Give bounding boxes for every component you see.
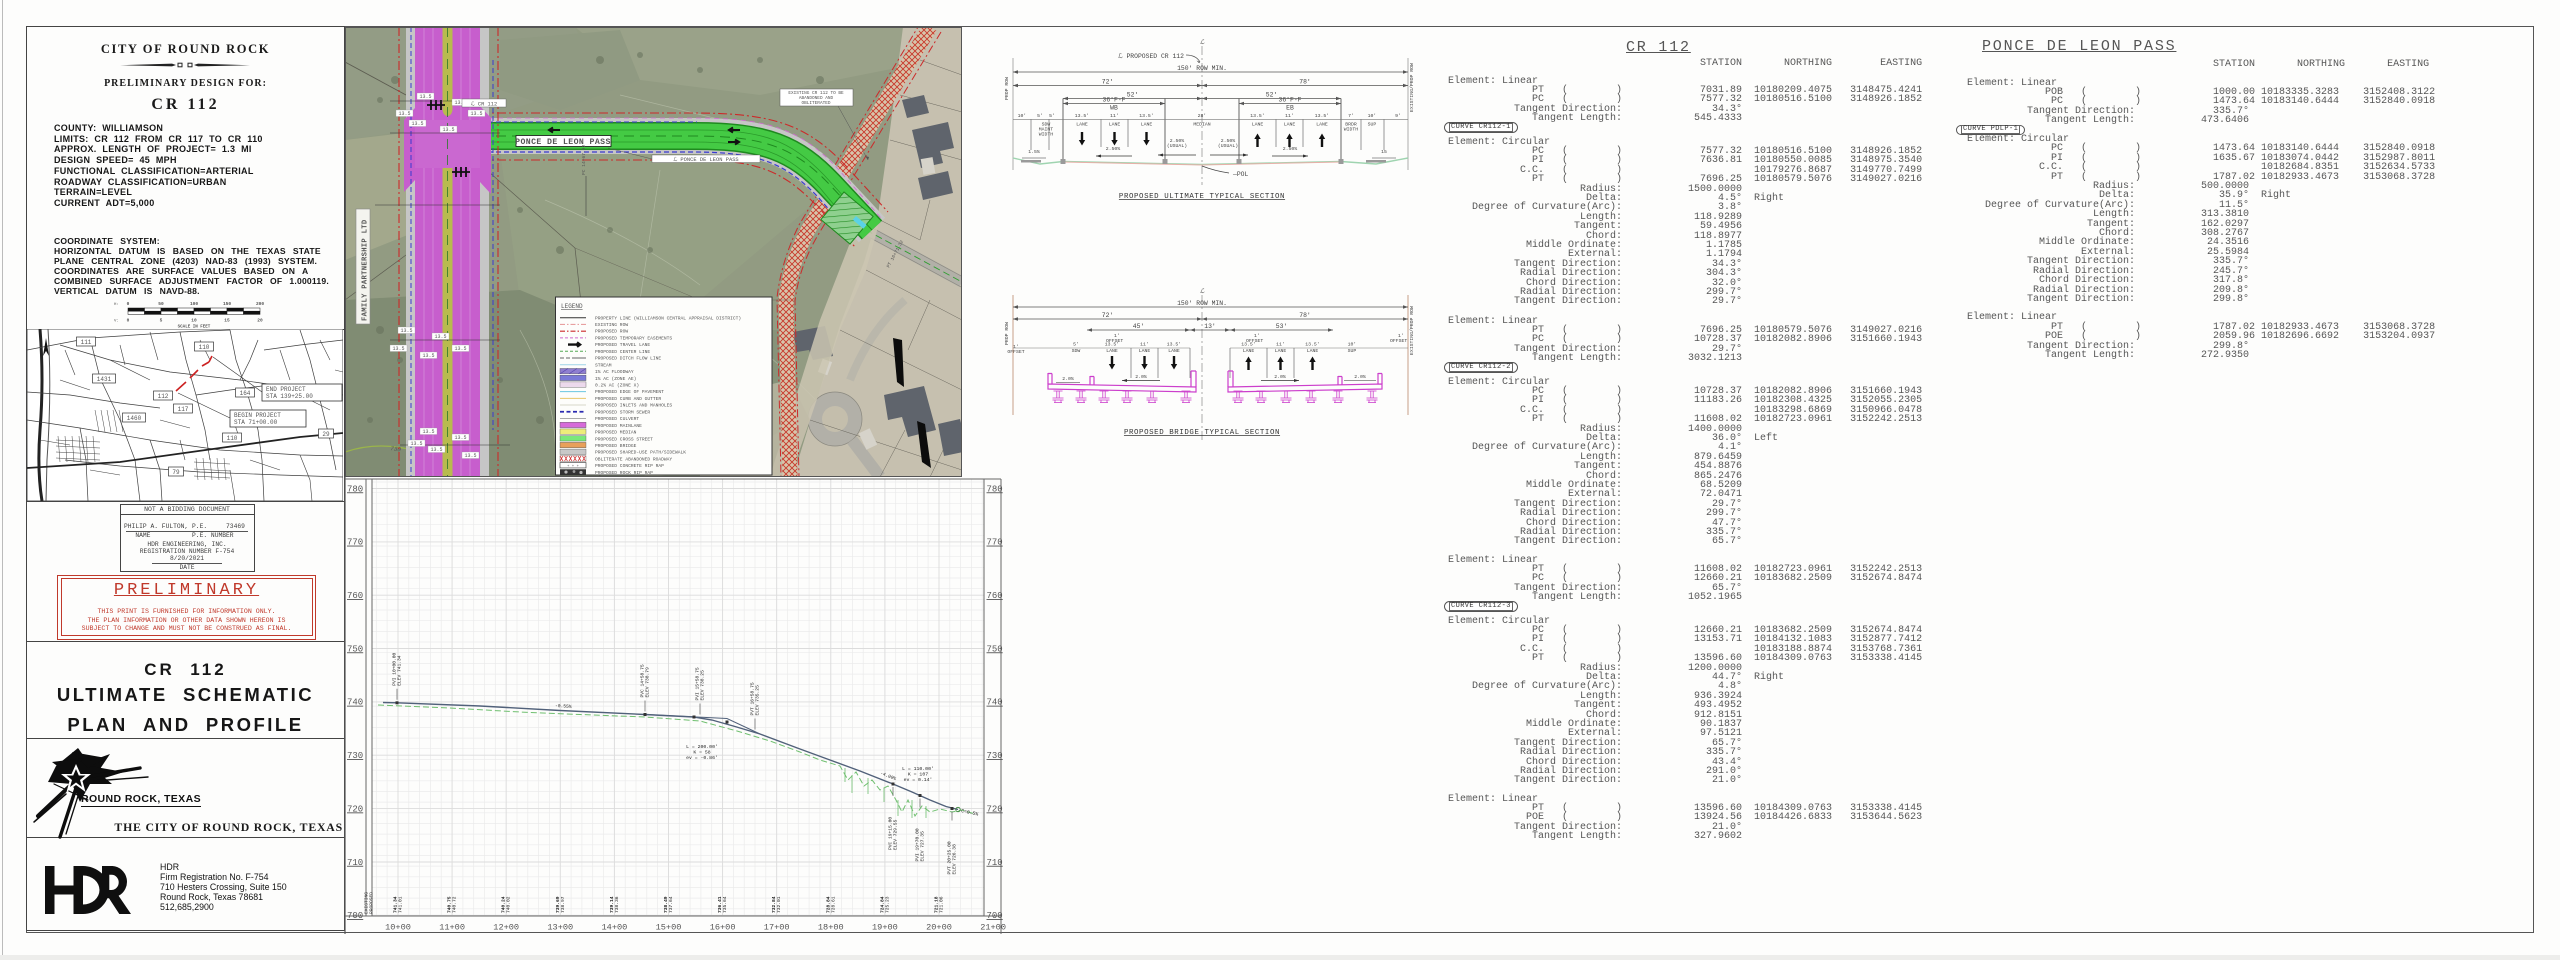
svg-text:72': 72': [1102, 79, 1114, 86]
svg-text:LANE: LANE: [1106, 348, 1118, 354]
svg-text:10': 10': [1368, 113, 1377, 119]
svg-text:10': 10': [1348, 342, 1357, 348]
svg-text:5: 5: [160, 318, 163, 324]
svg-text:50: 50: [158, 301, 164, 307]
svg-text:760: 760: [987, 591, 1003, 601]
svg-text:SDW: SDW: [1072, 348, 1081, 354]
svg-text:9': 9': [1395, 113, 1401, 119]
svg-text:117: 117: [178, 406, 189, 413]
svg-text:13.5: 13.5: [411, 121, 423, 127]
svg-text:V:: V:: [114, 320, 119, 324]
svg-text:730: 730: [347, 751, 363, 761]
svg-text:53': 53': [1276, 323, 1288, 330]
svg-text:PROPERTY LINE (WILLIAMSON CENT: PROPERTY LINE (WILLIAMSON CENTRAL APPRAI…: [595, 315, 741, 321]
svg-text:LANE: LANE: [1243, 348, 1255, 354]
svg-text:13.5': 13.5': [1305, 342, 1319, 348]
svg-text:750: 750: [987, 644, 1003, 654]
svg-text:OFFSET: OFFSET: [1007, 349, 1024, 355]
svg-text:1% AC FLOODWAY: 1% AC FLOODWAY: [595, 369, 634, 375]
svg-text:5': 5': [1037, 113, 1043, 119]
svg-text:36'F-F: 36'F-F: [1278, 97, 1301, 104]
svg-text:17+00: 17+00: [764, 923, 790, 933]
svg-text:760: 760: [347, 591, 363, 601]
svg-text:0: 0: [127, 301, 130, 307]
svg-text:ELEV 741.34: ELEV 741.34: [397, 655, 403, 686]
svg-text:5': 5': [1073, 342, 1079, 348]
svg-text:13+00: 13+00: [547, 923, 573, 933]
svg-text:732.01: 732.01: [776, 896, 782, 913]
svg-text:7': 7': [1348, 113, 1354, 119]
svg-text:L = 110.00': L = 110.00': [902, 766, 934, 772]
svg-text:SUP: SUP: [1348, 348, 1357, 354]
svg-text:ELEV 738.25: ELEV 738.25: [700, 670, 706, 701]
svg-text:79: 79: [172, 469, 180, 476]
svg-text:16+00: 16+00: [710, 923, 736, 933]
svg-text:10': 10': [1018, 113, 1027, 119]
svg-text:150' ROW MIN.: 150' ROW MIN.: [1177, 65, 1227, 72]
svg-text:ℒ: ℒ: [1200, 39, 1205, 46]
svg-text:2.0%: 2.0%: [1274, 374, 1286, 380]
svg-text:PROPOSED BRIDGE: PROPOSED BRIDGE: [595, 443, 637, 449]
svg-text:738.36: 738.36: [614, 896, 620, 913]
svg-text:PONCE DE LEON PASS: PONCE DE LEON PASS: [515, 138, 611, 147]
svg-text:11': 11': [1110, 113, 1119, 119]
svg-text:PROPOSED SHARED-USE PATH/SIDEW: PROPOSED SHARED-USE PATH/SIDEWALK: [595, 450, 686, 456]
svg-text:700: 700: [987, 911, 1003, 921]
svg-text:ELEV 726.38: ELEV 726.38: [952, 844, 958, 875]
svg-text:13.5: 13.5: [442, 127, 454, 133]
svg-text:ℒ PONCE DE LEON PASS: ℒ PONCE DE LEON PASS: [673, 157, 738, 163]
svg-text:110: 110: [227, 435, 238, 442]
svg-text:13.5: 13.5: [470, 111, 482, 117]
svg-text:740: 740: [987, 698, 1003, 708]
svg-text:MEDIAN: MEDIAN: [1193, 122, 1210, 128]
svg-text:LANE: LANE: [1307, 348, 1319, 354]
svg-text:78': 78': [1299, 312, 1311, 319]
svg-text:2.50%: 2.50%: [1106, 146, 1121, 152]
svg-text:112: 112: [158, 393, 169, 400]
svg-text:LANE: LANE: [1168, 348, 1180, 354]
svg-text:ℒ CR 112: ℒ CR 112: [471, 102, 498, 108]
svg-text:15: 15: [224, 318, 230, 324]
svg-text:13.5': 13.5': [1167, 342, 1181, 348]
svg-text:K = 107: K = 107: [908, 772, 928, 778]
svg-text:WIDTH: WIDTH: [1039, 132, 1054, 138]
svg-text:1% AC (ZONE AE): 1% AC (ZONE AE): [595, 376, 636, 382]
svg-text:LANE: LANE: [1076, 122, 1088, 128]
svg-text:PROPOSED INLETS AND MANHOLES: PROPOSED INLETS AND MANHOLES: [595, 403, 672, 409]
svg-text:—POL: —POL: [1232, 171, 1249, 178]
svg-text:H:: H:: [114, 303, 119, 307]
svg-text:ELEV 729.55: ELEV 729.55: [893, 819, 899, 850]
svg-text:11+00: 11+00: [439, 923, 465, 933]
svg-text:PROPOSED CENTER LINE: PROPOSED CENTER LINE: [595, 349, 650, 355]
svg-text:FAMILY PARTNERSHIP LTD: FAMILY PARTNERSHIP LTD: [362, 219, 370, 321]
svg-text:PROPOSED: PROPOSED: [369, 892, 375, 914]
svg-text:LANE: LANE: [1141, 122, 1153, 128]
svg-text:OFFSET: OFFSET: [1390, 338, 1407, 344]
svg-text:13.5: 13.5: [398, 111, 410, 117]
svg-text:PROPOSED ROW: PROPOSED ROW: [595, 329, 628, 335]
svg-text:735.64: 735.64: [722, 896, 728, 913]
svg-text:11': 11': [1276, 342, 1285, 348]
svg-text:K = 58: K = 58: [693, 750, 710, 756]
svg-text:L = 200.00': L = 200.00': [686, 744, 718, 750]
svg-text:2.0%: 2.0%: [1354, 374, 1366, 380]
svg-text:LANE: LANE: [1284, 122, 1296, 128]
svg-text:(USUAL): (USUAL): [1218, 143, 1238, 149]
svg-text:LANE: LANE: [1316, 122, 1328, 128]
svg-text:741.01: 741.01: [398, 896, 404, 913]
svg-text:720: 720: [987, 804, 1003, 814]
svg-text:10: 10: [191, 318, 197, 324]
svg-text:13.5: 13.5: [392, 346, 404, 352]
svg-text:13.5': 13.5': [1315, 113, 1329, 119]
svg-text:13.5': 13.5': [1241, 342, 1255, 348]
svg-text:78': 78': [1299, 79, 1311, 86]
svg-text:PROPOSED CULVERT: PROPOSED CULVERT: [595, 416, 639, 422]
svg-text:BEGIN PROJECT: BEGIN PROJECT: [234, 412, 281, 419]
svg-text:-0.55%: -0.55%: [555, 703, 572, 710]
svg-text:725.23: 725.23: [884, 896, 890, 913]
svg-text:720: 720: [347, 804, 363, 814]
svg-text:738.97: 738.97: [560, 896, 566, 913]
svg-text:2.50%: 2.50%: [1283, 146, 1298, 152]
svg-text:737.64: 737.64: [668, 896, 674, 913]
svg-text:1431: 1431: [97, 376, 112, 383]
svg-text:STA 139+25.00: STA 139+25.00: [266, 393, 313, 400]
svg-text:13.5: 13.5: [422, 429, 434, 435]
svg-text:ev = -0.86': ev = -0.86': [686, 755, 718, 761]
svg-text:EXISTING/PROP ROW: EXISTING/PROP ROW: [1409, 306, 1415, 355]
svg-text:29: 29: [322, 431, 330, 438]
svg-text:PROPOSED STORM SEWER: PROPOSED STORM SEWER: [595, 409, 650, 415]
svg-text:PROPOSED BRIDGE TYPICAL SECTIO: PROPOSED BRIDGE TYPICAL SECTION: [1124, 429, 1280, 437]
svg-text:13.5: 13.5: [430, 447, 442, 453]
svg-text:5': 5': [1049, 113, 1055, 119]
svg-text:13.5: 13.5: [454, 346, 466, 352]
svg-text:2.0%: 2.0%: [1135, 374, 1147, 380]
svg-text:13.5': 13.5': [1139, 113, 1153, 119]
svg-text:721.06: 721.06: [939, 896, 945, 913]
svg-text:11': 11': [1140, 342, 1149, 348]
svg-text:710: 710: [347, 858, 363, 868]
svg-text:100: 100: [190, 301, 198, 307]
svg-text:20+00: 20+00: [926, 923, 952, 933]
svg-text:740: 740: [347, 698, 363, 708]
svg-text:13': 13': [1204, 323, 1216, 330]
svg-text:WB: WB: [1110, 105, 1118, 112]
svg-text:0.2% AC (ZONE X): 0.2% AC (ZONE X): [595, 383, 639, 389]
svg-text:PROPOSED CURB AND GUTTER: PROPOSED CURB AND GUTTER: [595, 396, 661, 402]
svg-text:LEGEND: LEGEND: [561, 303, 583, 310]
svg-text:150: 150: [223, 301, 231, 307]
svg-text:13.5': 13.5': [1105, 342, 1119, 348]
svg-text:PROPOSED MEDIAN: PROPOSED MEDIAN: [595, 430, 637, 436]
svg-text:1460: 1460: [127, 415, 142, 422]
svg-text:LANE: LANE: [1275, 348, 1287, 354]
svg-text:19+00: 19+00: [872, 923, 898, 933]
svg-text:111: 111: [81, 339, 92, 346]
svg-text:PROPOSED MAINLANE: PROPOSED MAINLANE: [595, 423, 642, 429]
svg-text:72': 72': [1102, 312, 1114, 319]
svg-text:13.5: 13.5: [434, 334, 446, 340]
svg-text:SUP: SUP: [1368, 122, 1377, 128]
svg-text:15: 15: [1381, 149, 1387, 155]
svg-text:21+00: 21+00: [980, 923, 1006, 933]
svg-text:52': 52': [1127, 92, 1139, 99]
svg-text:150' ROW MIN.: 150' ROW MIN.: [1177, 300, 1227, 307]
svg-text:PROPOSED TRAVEL LANE: PROPOSED TRAVEL LANE: [595, 342, 650, 348]
svg-text:728.61: 728.61: [830, 896, 836, 913]
svg-text:ELEV 727.35: ELEV 727.35: [920, 831, 926, 862]
svg-text:ℒ: ℒ: [1200, 288, 1205, 295]
svg-text:10+00: 10+00: [385, 923, 411, 933]
svg-text:45': 45': [1133, 323, 1145, 330]
svg-text:ELEV 738.79: ELEV 738.79: [645, 667, 651, 698]
svg-text:EB: EB: [1286, 105, 1294, 112]
svg-text:END PROJECT: END PROJECT: [266, 386, 306, 393]
svg-text:13.5: 13.5: [400, 328, 412, 334]
svg-text:2.0%: 2.0%: [1062, 376, 1074, 382]
svg-text:52': 52': [1266, 92, 1278, 99]
svg-text:730: 730: [987, 751, 1003, 761]
svg-text:LANE: LANE: [1252, 122, 1264, 128]
svg-text:750: 750: [347, 644, 363, 654]
svg-text:780: 780: [987, 484, 1003, 494]
svg-text:12+00: 12+00: [493, 923, 519, 933]
svg-text:11': 11': [1285, 113, 1294, 119]
svg-text:ℒ PROPOSED CR 112: ℒ PROPOSED CR 112: [1118, 53, 1184, 60]
svg-text:36'F-F: 36'F-F: [1102, 97, 1125, 104]
svg-text:13.5': 13.5': [1250, 113, 1264, 119]
svg-text:700: 700: [347, 911, 363, 921]
svg-text:OBLITERATED: OBLITERATED: [802, 101, 831, 106]
svg-text:STREAM: STREAM: [595, 362, 612, 368]
svg-text:780: 780: [347, 484, 363, 494]
svg-text:PROPOSED EDGE OF PAVEMENT: PROPOSED EDGE OF PAVEMENT: [595, 389, 664, 395]
svg-text:EXISTING ROW: EXISTING ROW: [595, 322, 628, 328]
svg-text:770: 770: [987, 538, 1003, 548]
svg-text:13.5: 13.5: [422, 353, 434, 359]
svg-text:770: 770: [347, 538, 363, 548]
svg-text:18+00: 18+00: [818, 923, 844, 933]
svg-text:13.5: 13.5: [410, 441, 422, 447]
svg-text:STA 71+00.00: STA 71+00.00: [234, 419, 278, 426]
svg-text:200: 200: [256, 301, 264, 307]
svg-text:710: 710: [987, 858, 1003, 868]
svg-text:740.02: 740.02: [506, 896, 512, 913]
svg-text:110: 110: [199, 344, 210, 351]
svg-text:740.72: 740.72: [452, 896, 458, 913]
svg-text:13.5: 13.5: [419, 94, 431, 100]
svg-text:13.5: 13.5: [464, 453, 476, 459]
svg-text:LANE: LANE: [1109, 122, 1121, 128]
svg-text:0: 0: [127, 318, 130, 324]
svg-text:ELEV 735.25: ELEV 735.25: [755, 685, 761, 716]
svg-text:PROPOSED DITCH FLOW LINE: PROPOSED DITCH FLOW LINE: [595, 356, 661, 362]
svg-text:PC 14+67.92: PC 14+67.92: [581, 144, 587, 175]
svg-text:164: 164: [240, 390, 251, 397]
svg-text:13.5': 13.5': [1075, 113, 1089, 119]
svg-text:28': 28': [1198, 113, 1207, 119]
svg-text:14+00: 14+00: [602, 923, 628, 933]
svg-text:EXISTING/PROP ROW: EXISTING/PROP ROW: [1409, 63, 1415, 112]
svg-text:ev = 0.14': ev = 0.14': [904, 777, 933, 783]
svg-text:PROP ROW: PROP ROW: [1004, 322, 1010, 345]
svg-text:PROPOSED CROSS STREET: PROPOSED CROSS STREET: [595, 436, 653, 442]
svg-text:(USUAL): (USUAL): [1167, 143, 1187, 149]
svg-text:LANE: LANE: [1139, 348, 1151, 354]
svg-text:PROPOSED ULTIMATE TYPICAL SECT: PROPOSED ULTIMATE TYPICAL SECTION: [1119, 193, 1285, 201]
svg-text:13.5: 13.5: [454, 435, 466, 441]
svg-text:PROPOSED TEMPORARY EASEMENTS: PROPOSED TEMPORARY EASEMENTS: [595, 335, 672, 341]
svg-text:WIDTH: WIDTH: [1344, 127, 1359, 133]
svg-text:20: 20: [257, 318, 263, 324]
svg-text:15+00: 15+00: [656, 923, 682, 933]
svg-text:PROP ROW: PROP ROW: [1004, 77, 1010, 100]
svg-text:C=0.5%: C=0.5%: [961, 808, 979, 817]
svg-text:1.5%: 1.5%: [1028, 149, 1040, 155]
